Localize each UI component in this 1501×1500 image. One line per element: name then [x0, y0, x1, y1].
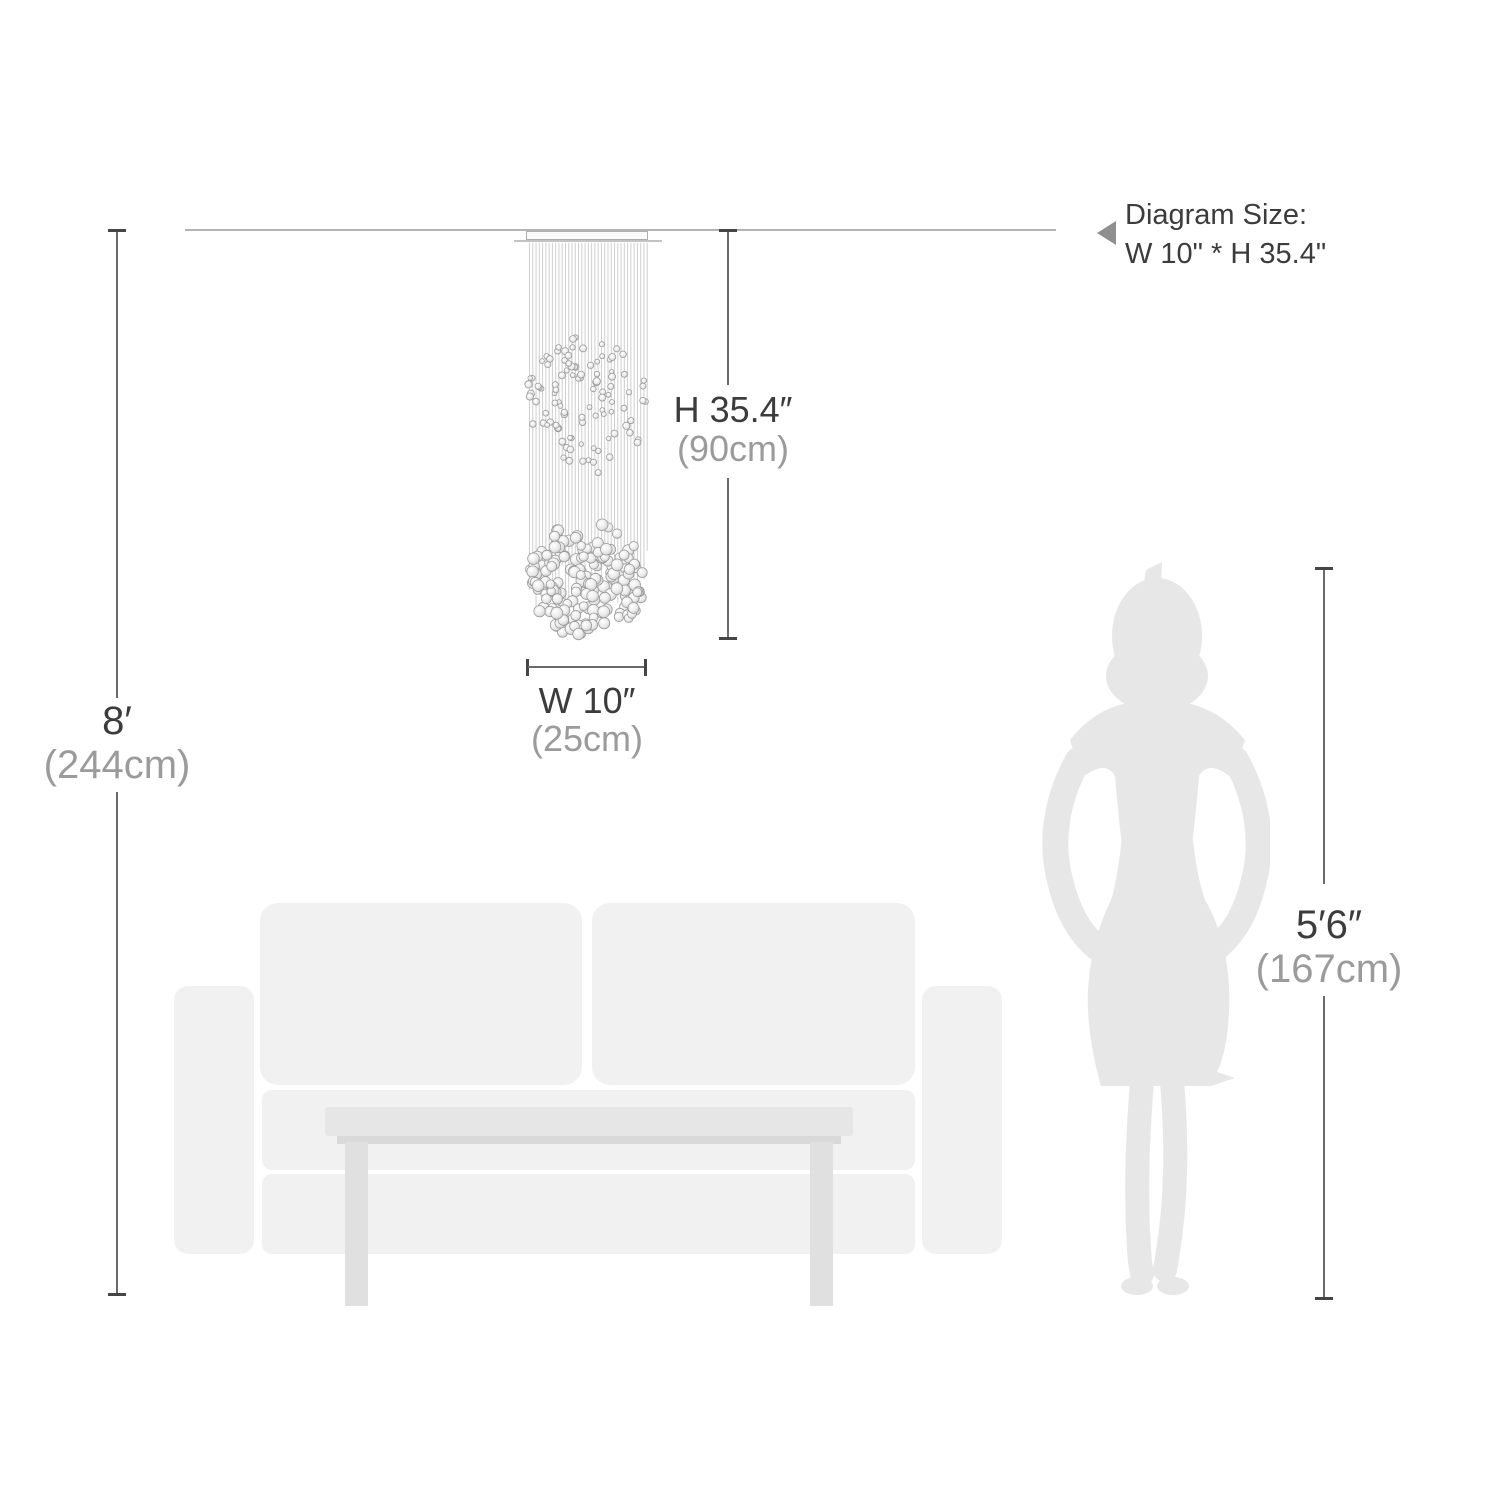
coffee-table-leg-right: [810, 1142, 833, 1306]
fixture-width-metric: (25cm): [467, 720, 707, 759]
triangle-left-icon: [1097, 221, 1116, 245]
width-dim-line: [528, 666, 646, 668]
height-dim-line-lower: [727, 478, 729, 637]
crystal-balls: [525, 335, 649, 640]
diagram-size-note: Diagram Size: W 10" * H 35.4": [1125, 196, 1326, 274]
person-dim-line-lower: [1323, 996, 1325, 1297]
person-dim-line-upper: [1323, 570, 1325, 884]
diagram-size-note-line1: Diagram Size:: [1125, 196, 1326, 235]
sofa-armrest-right: [922, 986, 1002, 1254]
sofa-back-cushion-right: [592, 903, 915, 1085]
person-height-label: 5′6″: [1209, 904, 1449, 947]
width-dim-right-tick: [644, 659, 647, 676]
coffee-table-top: [325, 1107, 853, 1136]
ceiling-dim-bottom-tick: [108, 1293, 126, 1296]
ceiling-height-metric: (244cm): [0, 744, 237, 787]
ceiling-dim-line-lower: [116, 792, 118, 1293]
ceiling-dim-line-upper: [116, 232, 118, 698]
height-dim-bottom-tick: [719, 637, 737, 640]
fixture-height-label: H 35.4″: [613, 391, 853, 430]
coffee-table-leg-left: [345, 1142, 368, 1306]
fixture-height-metric: (90cm): [613, 430, 853, 469]
coffee-table-edge: [337, 1136, 841, 1144]
size-diagram: 8′ (244cm) H 35.4″ (90cm) W 10″ (25cm): [0, 0, 1501, 1500]
fixture-width-label: W 10″: [467, 682, 707, 721]
person-dim-bottom-tick: [1315, 1297, 1333, 1300]
diagram-size-note-line2: W 10" * H 35.4": [1125, 235, 1326, 274]
height-dim-line-upper: [727, 232, 729, 385]
person-height-metric: (167cm): [1209, 948, 1449, 991]
sofa-back-cushion-left: [260, 903, 582, 1085]
ceiling-height-label: 8′: [0, 700, 237, 743]
sofa-armrest-left: [174, 986, 254, 1254]
